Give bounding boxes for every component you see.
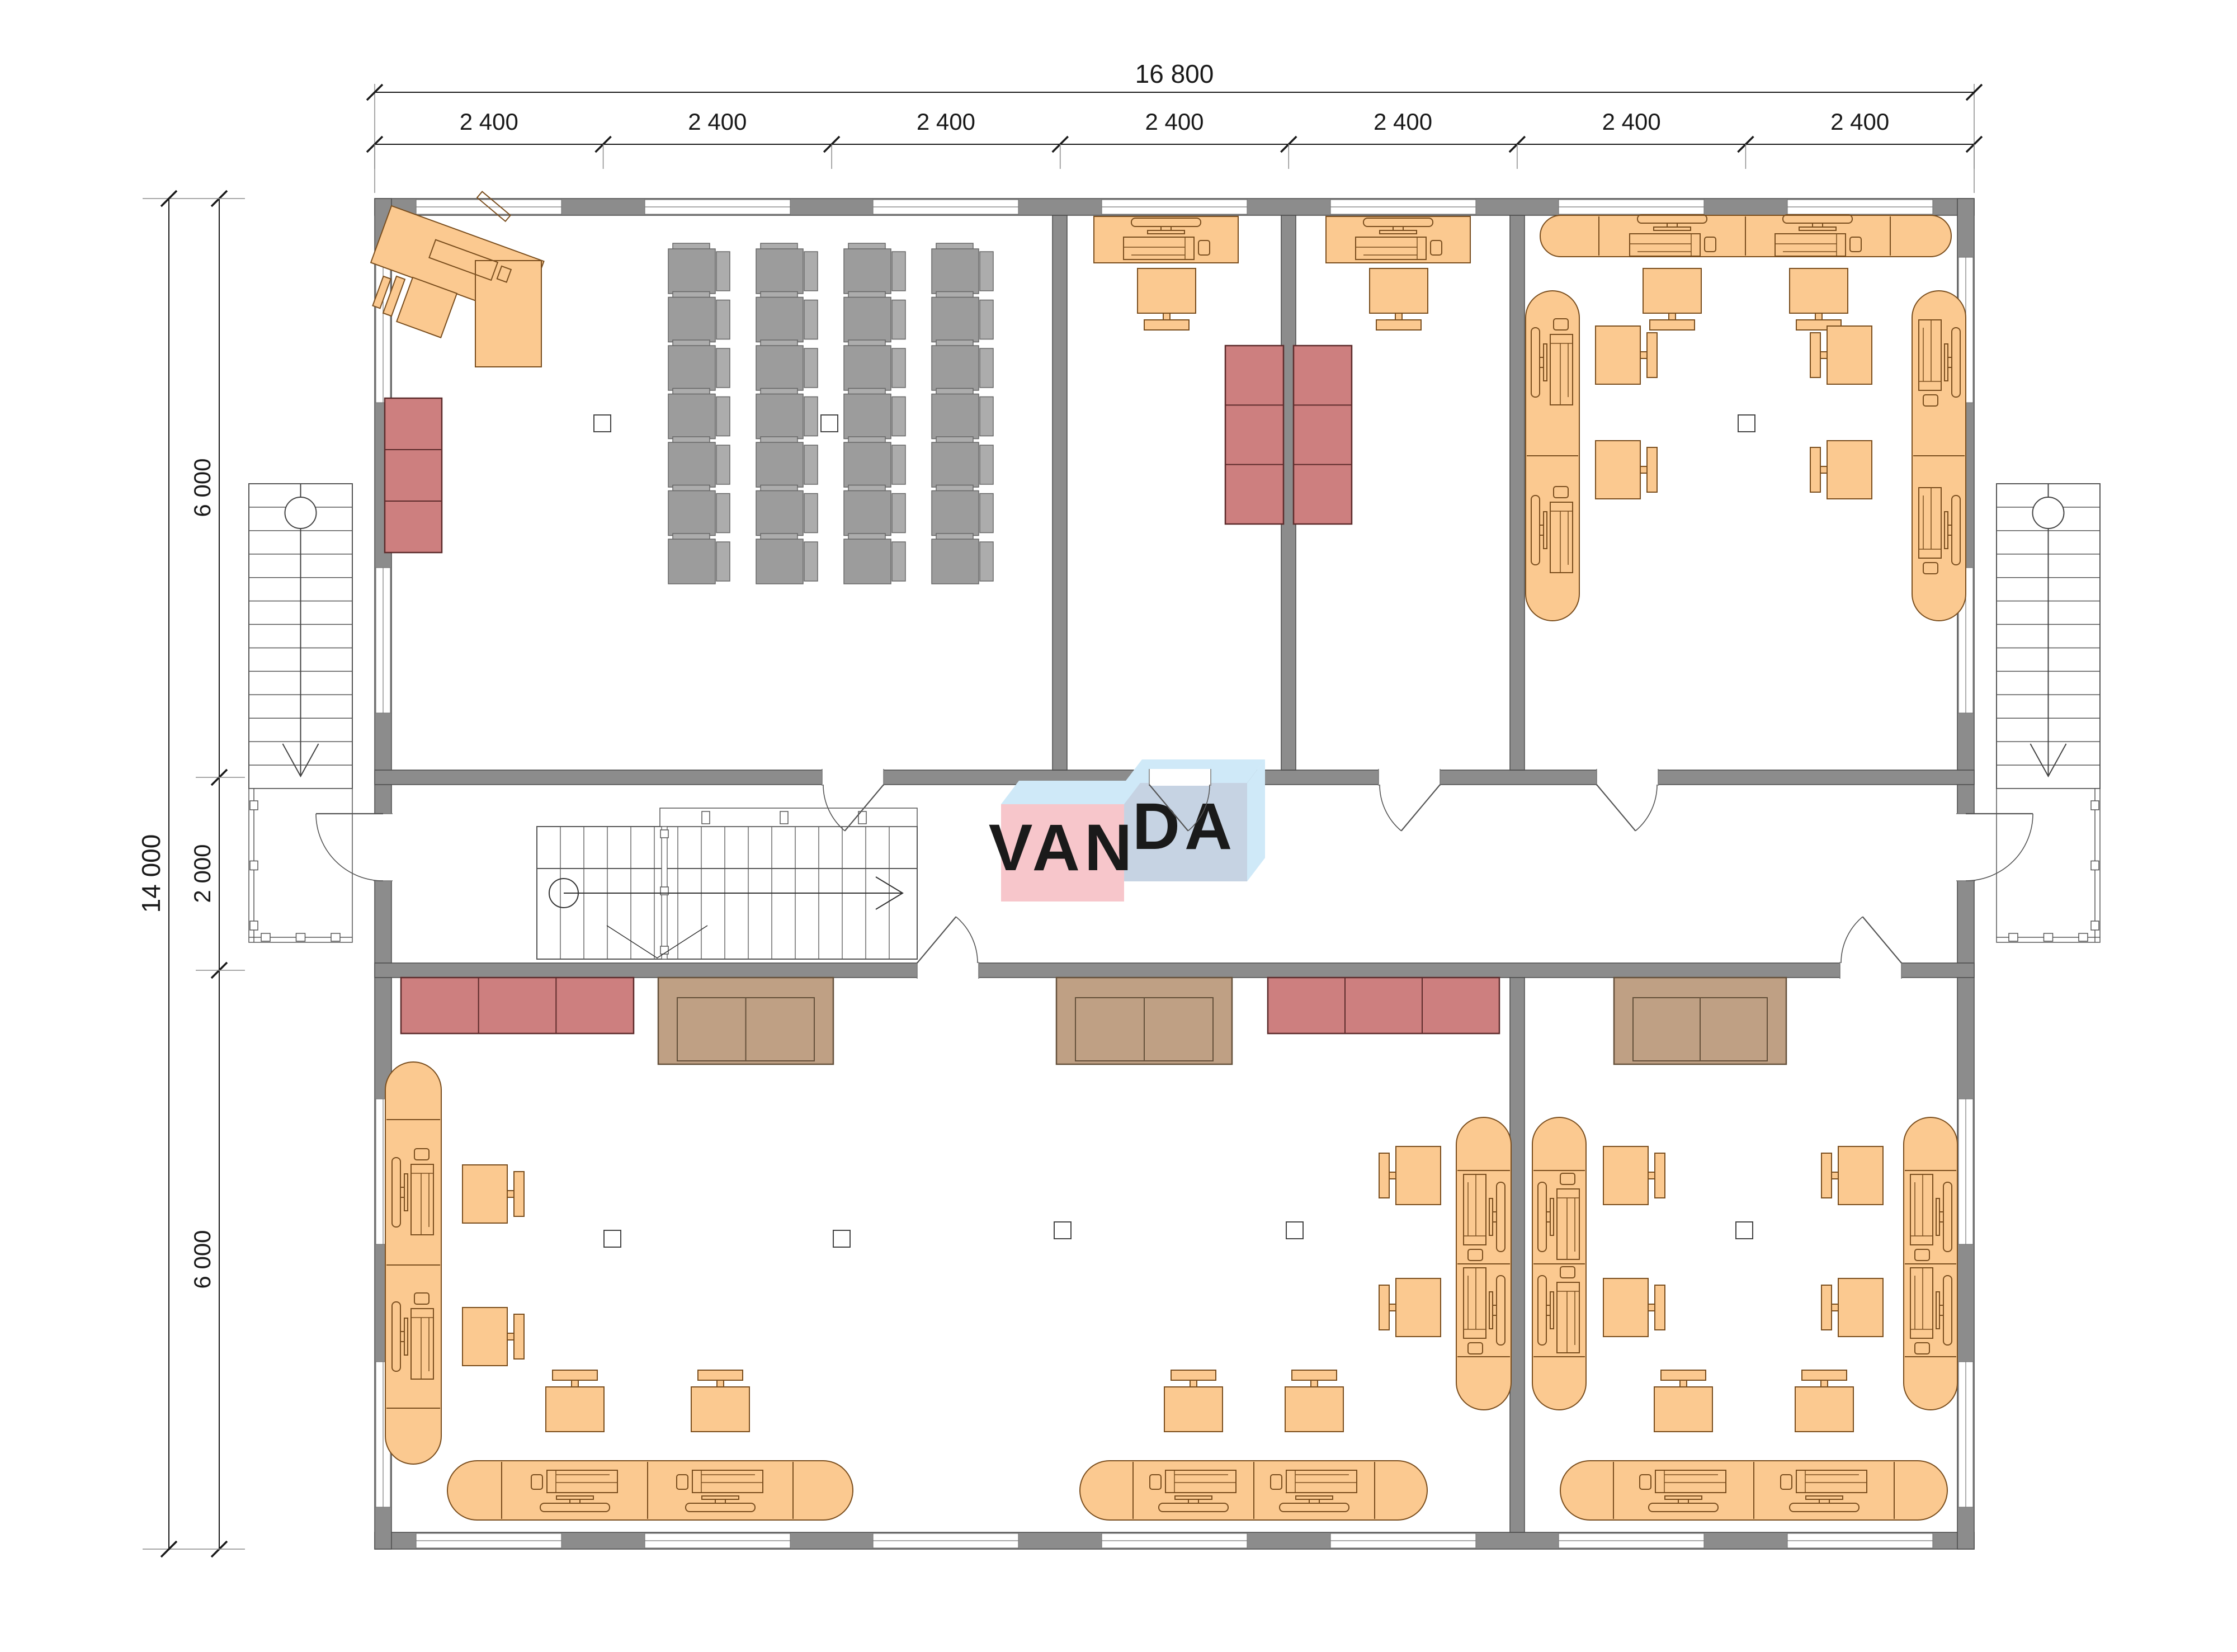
railing-post xyxy=(250,801,258,810)
cabinet-body xyxy=(401,978,634,1033)
chair-backrest xyxy=(892,542,905,581)
exterior-stairs-left xyxy=(249,484,352,942)
office-chair xyxy=(1379,1146,1441,1205)
chair-seat xyxy=(844,491,891,536)
chair-seat xyxy=(756,539,803,584)
chair-backrest xyxy=(1144,320,1189,330)
chair-backrest xyxy=(804,252,818,291)
chair-backrest xyxy=(716,494,730,533)
chair-stem xyxy=(1669,313,1676,320)
dimension-label: 2 400 xyxy=(460,108,518,135)
chair-backrest xyxy=(892,494,905,533)
chair-stem xyxy=(1832,1304,1838,1311)
chair-seat xyxy=(932,539,979,584)
desk-island xyxy=(1540,215,1951,257)
chair-stem xyxy=(572,1380,578,1387)
sofa xyxy=(1614,978,1786,1064)
window xyxy=(645,1533,790,1548)
chair-seat xyxy=(756,298,803,342)
office-chair xyxy=(1370,268,1428,330)
railing-post xyxy=(780,811,788,824)
window xyxy=(1102,200,1247,214)
chair-stem xyxy=(1389,1304,1396,1311)
door-opening xyxy=(1379,769,1440,786)
window xyxy=(873,1533,1018,1548)
railing-post xyxy=(296,933,305,941)
column-marker xyxy=(1054,1222,1071,1239)
chair-stem xyxy=(1311,1380,1318,1387)
chair-backrest xyxy=(804,445,818,484)
chair-seat xyxy=(668,442,715,487)
office-chair xyxy=(546,1370,604,1432)
chair-backrest xyxy=(1802,1370,1847,1380)
chair-backrest xyxy=(716,252,730,291)
window xyxy=(1559,200,1704,214)
stair-walkway xyxy=(660,808,917,827)
office-chair xyxy=(462,1165,524,1223)
chair-backrest xyxy=(1171,1370,1216,1380)
cabinet-body xyxy=(385,398,442,553)
office-chair xyxy=(1596,441,1657,499)
chair-stem xyxy=(1640,466,1647,473)
chair-seat xyxy=(756,491,803,536)
chair-seat xyxy=(668,249,715,294)
column-marker xyxy=(1738,415,1755,432)
chair-seat xyxy=(1138,268,1196,313)
railing-post xyxy=(331,933,340,941)
chair-seat xyxy=(756,394,803,439)
chair-stem xyxy=(1640,352,1647,358)
chair-seat xyxy=(1596,441,1640,499)
chair-seat xyxy=(844,442,891,487)
stair-start-circle xyxy=(2033,497,2064,528)
chair-backrest xyxy=(1810,333,1820,377)
chair-backrest xyxy=(804,494,818,533)
chair-seat xyxy=(844,298,891,342)
chair-backrest xyxy=(804,300,818,339)
chair-stem xyxy=(1815,313,1822,320)
chair-backrest xyxy=(1647,447,1657,492)
chair-backrest xyxy=(514,1172,524,1216)
logo-bevel-pink-top xyxy=(1001,781,1142,804)
cabinet xyxy=(1268,978,1499,1033)
office-chair xyxy=(1821,1146,1883,1205)
chair-backrest xyxy=(980,300,993,339)
chair-seat xyxy=(1596,326,1640,384)
dimension-label: 6 000 xyxy=(189,458,215,517)
chair-backrest xyxy=(1650,320,1695,330)
desk-island xyxy=(1080,1461,1427,1520)
cabinet xyxy=(401,978,634,1033)
chair-backrest xyxy=(716,348,730,388)
office-chair xyxy=(1643,268,1701,330)
chair-seat xyxy=(668,539,715,584)
entrance-landing xyxy=(1997,789,2100,942)
railing-post xyxy=(250,861,258,870)
window xyxy=(1787,1533,1933,1548)
chair-seat xyxy=(668,394,715,439)
chair-seat xyxy=(756,346,803,390)
chair-seat xyxy=(1396,1278,1441,1337)
desk-island xyxy=(1532,1117,1586,1410)
chair-backrest xyxy=(980,445,993,484)
office-chair xyxy=(1790,268,1848,330)
floor-plan-page: 16 8002 4002 4002 4002 4002 4002 4002 40… xyxy=(0,0,2237,1652)
dimension-label: 14 000 xyxy=(136,834,166,913)
chair-backrest xyxy=(698,1370,743,1380)
dimension-label: 2 400 xyxy=(917,108,975,135)
window xyxy=(645,200,790,214)
stair-start-circle xyxy=(285,497,317,528)
chair-backrest xyxy=(980,542,993,581)
chair-backrest xyxy=(1655,1285,1665,1330)
office-chair xyxy=(1603,1278,1665,1337)
desk xyxy=(1326,216,1470,263)
chair-backrest xyxy=(716,300,730,339)
door-opening xyxy=(1149,769,1211,786)
chair-seat xyxy=(932,442,979,487)
chair-seat xyxy=(756,442,803,487)
chair-seat xyxy=(1827,326,1872,384)
door-opening xyxy=(1840,962,1901,979)
exterior-stairs-right xyxy=(1997,484,2100,942)
column-marker xyxy=(594,415,611,432)
chair-backrest xyxy=(892,348,905,388)
dimension-label: 2 400 xyxy=(1830,108,1889,135)
chair-backrest xyxy=(892,445,905,484)
chair-backrest xyxy=(892,300,905,339)
office-chair xyxy=(1603,1146,1665,1205)
chair-backrest xyxy=(716,445,730,484)
desk-top xyxy=(385,1062,441,1464)
chair-stem xyxy=(1832,1172,1838,1179)
chair-stem xyxy=(507,1333,514,1340)
desk-island xyxy=(1912,291,1966,621)
dimension-label: 2 400 xyxy=(1602,108,1661,135)
railing-post xyxy=(2091,861,2099,870)
desk-top xyxy=(447,1461,853,1520)
wall xyxy=(1053,215,1067,770)
sofa xyxy=(1056,978,1232,1064)
chair-seat xyxy=(668,346,715,390)
chair-backrest xyxy=(1810,447,1820,492)
chair-seat xyxy=(1654,1387,1712,1432)
door-opening xyxy=(1956,814,1975,881)
sofa xyxy=(658,978,833,1064)
dimension-label: 2 000 xyxy=(189,844,215,903)
chair-seat xyxy=(1603,1278,1648,1337)
chair-backrest xyxy=(514,1314,524,1359)
chair-stem xyxy=(717,1380,724,1387)
railing-post xyxy=(702,811,710,824)
chair-stem xyxy=(1820,352,1827,358)
desk-island xyxy=(385,1062,441,1464)
dimension-label: 2 400 xyxy=(688,108,747,135)
chair-backrest xyxy=(716,397,730,436)
office-chair xyxy=(1810,441,1872,499)
door-opening xyxy=(917,962,979,979)
window xyxy=(1958,1362,1973,1507)
chair-stem xyxy=(1680,1380,1687,1387)
chair-seat xyxy=(1285,1387,1343,1432)
column-marker xyxy=(604,1230,621,1247)
chair-seat xyxy=(1827,441,1872,499)
railing-post xyxy=(261,933,270,941)
chair-stem xyxy=(1389,1172,1396,1179)
chair-backrest xyxy=(1647,333,1657,377)
office-chair xyxy=(462,1308,524,1366)
cabinet xyxy=(385,398,442,553)
chair-backrest xyxy=(1821,1153,1832,1198)
chair-stem xyxy=(1821,1380,1828,1387)
chair-stem xyxy=(1648,1172,1655,1179)
office-chair xyxy=(1285,1370,1343,1432)
chair-seat xyxy=(844,394,891,439)
office-chair xyxy=(1596,326,1657,384)
chair-stem xyxy=(1820,466,1827,473)
chair-seat xyxy=(1795,1387,1853,1432)
chair-backrest xyxy=(553,1370,597,1380)
column-marker xyxy=(833,1230,850,1247)
cabinet-body xyxy=(1225,346,1283,524)
railing-post xyxy=(2091,801,2099,810)
chair-seat xyxy=(668,298,715,342)
chair-seat xyxy=(1164,1387,1223,1432)
chair-seat xyxy=(462,1165,507,1223)
column-marker xyxy=(821,415,838,432)
chair-seat xyxy=(1790,268,1848,313)
chair-backrest xyxy=(1292,1370,1337,1380)
chair-seat xyxy=(1838,1278,1883,1337)
desk-top xyxy=(1094,216,1238,263)
desk-island xyxy=(1560,1461,1947,1520)
office-chair xyxy=(1379,1278,1441,1337)
column-marker xyxy=(1286,1222,1303,1239)
door-opening xyxy=(1597,769,1658,786)
chair-backrest xyxy=(892,397,905,436)
wall xyxy=(1510,978,1525,1532)
chair-backrest xyxy=(804,397,818,436)
chair-backrest xyxy=(980,252,993,291)
chair-backrest xyxy=(1655,1153,1665,1198)
desk-island xyxy=(447,1461,853,1520)
window xyxy=(873,200,1018,214)
window xyxy=(1330,200,1476,214)
railing-post xyxy=(250,921,258,930)
chair-backrest xyxy=(1379,1285,1389,1330)
office-chair xyxy=(1654,1370,1712,1432)
vanda-logo: VANDA xyxy=(989,759,1265,901)
chair-backrest xyxy=(716,542,730,581)
door-opening xyxy=(374,814,393,881)
railing-post xyxy=(2044,933,2053,941)
desk xyxy=(1094,216,1238,263)
chair-seat xyxy=(756,249,803,294)
dimension-label: 16 800 xyxy=(1135,59,1214,88)
office-chair xyxy=(1138,268,1196,330)
chair-seat xyxy=(1370,268,1428,313)
office-chair xyxy=(1164,1370,1223,1432)
chair-stem xyxy=(1190,1380,1197,1387)
cabinet-body xyxy=(1294,346,1352,524)
chair-backrest xyxy=(980,348,993,388)
railing-post xyxy=(2091,921,2099,930)
chair-seat xyxy=(932,491,979,536)
chair-seat xyxy=(668,491,715,536)
office-chair xyxy=(691,1370,749,1432)
chair-backrest xyxy=(804,348,818,388)
floor-plan-canvas: 16 8002 4002 4002 4002 4002 4002 4002 40… xyxy=(0,0,2237,1652)
chair-stem xyxy=(507,1191,514,1197)
chair-seat xyxy=(462,1308,507,1366)
chair-backrest xyxy=(892,252,905,291)
entrance-landing xyxy=(249,789,352,942)
window xyxy=(416,1533,561,1548)
chair-seat xyxy=(1396,1146,1441,1205)
cabinet xyxy=(1225,346,1283,524)
chair-backrest xyxy=(1376,320,1421,330)
cabinet xyxy=(1294,346,1352,524)
corridor-stairs xyxy=(537,808,917,959)
chair-backrest xyxy=(980,494,993,533)
wall xyxy=(375,963,1974,978)
office-chair xyxy=(1821,1278,1883,1337)
chair-seat xyxy=(546,1387,604,1432)
office-chair xyxy=(1810,326,1872,384)
chair-seat xyxy=(932,249,979,294)
cabinet-body xyxy=(1268,978,1499,1033)
railing-post xyxy=(660,830,668,838)
window xyxy=(1787,200,1933,214)
chair-stem xyxy=(1163,313,1170,320)
logo-text-van: VAN xyxy=(989,811,1136,885)
chair-seat xyxy=(932,394,979,439)
chair-backrest xyxy=(980,397,993,436)
dimension-label: 2 400 xyxy=(1374,108,1432,135)
chair-seat xyxy=(691,1387,749,1432)
dimension-label: 2 400 xyxy=(1145,108,1204,135)
chair-seat xyxy=(932,298,979,342)
chair-seat xyxy=(844,539,891,584)
window xyxy=(1330,1533,1476,1548)
chair-stem xyxy=(1648,1304,1655,1311)
desk-island xyxy=(1456,1117,1511,1410)
door-opening xyxy=(822,769,884,786)
chair-seat xyxy=(844,249,891,294)
office-chair xyxy=(1795,1370,1853,1432)
railing-post xyxy=(2009,933,2018,941)
chair-seat xyxy=(1838,1146,1883,1205)
window xyxy=(1102,1533,1247,1548)
desk-top xyxy=(1326,216,1470,263)
dimension-label: 6 000 xyxy=(189,1230,215,1288)
chair-seat xyxy=(1643,268,1701,313)
chair-seat xyxy=(1603,1146,1648,1205)
chair-stem xyxy=(1395,313,1402,320)
window xyxy=(1958,1099,1973,1244)
window xyxy=(1559,1533,1704,1548)
chair-seat xyxy=(844,346,891,390)
desk-island xyxy=(1526,291,1579,621)
chair-backrest xyxy=(804,542,818,581)
chair-backrest xyxy=(1821,1285,1832,1330)
column-marker xyxy=(1736,1222,1753,1239)
wall xyxy=(1510,215,1525,770)
chair-seat xyxy=(932,346,979,390)
window xyxy=(376,568,390,713)
railing-post xyxy=(2079,933,2088,941)
chair-backrest xyxy=(1661,1370,1706,1380)
chair-backrest xyxy=(1379,1153,1389,1198)
desk-island xyxy=(1904,1117,1957,1410)
